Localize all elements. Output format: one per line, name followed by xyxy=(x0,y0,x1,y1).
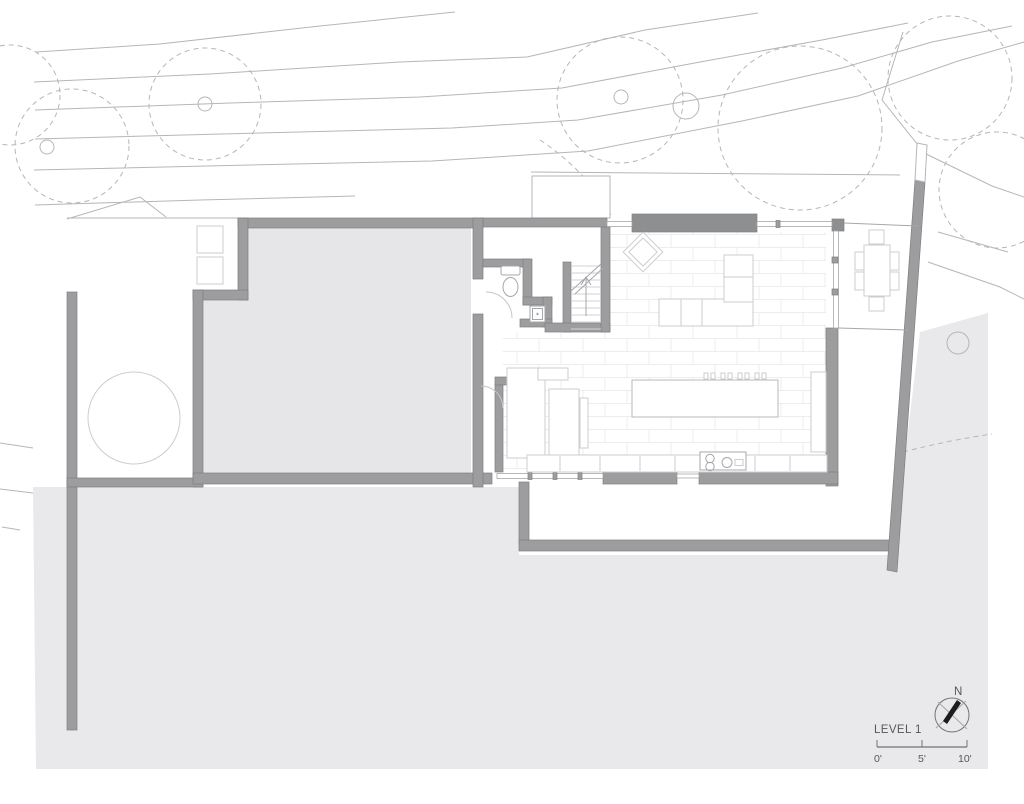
house-west-wall-upper xyxy=(473,218,483,279)
site-retaining-wall-west xyxy=(67,487,77,730)
sofa-seat xyxy=(659,299,753,326)
house-south-wall-b xyxy=(699,472,838,484)
garage-west-wall xyxy=(193,290,203,487)
courtyard-south-wall xyxy=(67,478,203,487)
window-mullion xyxy=(832,289,838,295)
planter xyxy=(197,257,223,284)
stairs xyxy=(571,264,603,329)
dining-chair xyxy=(890,272,899,290)
garage-north-wall xyxy=(238,218,483,228)
patio-west-wall xyxy=(519,482,529,544)
toilet-tank xyxy=(501,266,520,275)
porch-outline xyxy=(532,176,610,218)
tree-canopy-icon xyxy=(557,37,683,163)
refrigerator xyxy=(549,389,579,455)
patio-south-wall xyxy=(519,540,893,551)
courtyard-tree-icon xyxy=(88,372,180,464)
sink-drain-icon xyxy=(536,313,538,315)
scale-tick-0: 0' xyxy=(874,753,882,765)
tree-canopy-icon xyxy=(939,132,1024,248)
dining-table xyxy=(864,245,890,296)
stair-direction-arrow xyxy=(581,277,591,316)
dining-chair xyxy=(869,297,884,311)
south-glass-door xyxy=(677,474,699,478)
kitchen-island xyxy=(632,380,778,417)
kitchen-west-counter xyxy=(507,368,545,458)
kitchen-shelf xyxy=(538,368,568,380)
kitchen-south-counter xyxy=(527,455,827,472)
house-east-wall xyxy=(826,328,838,486)
vestibule-north-wall xyxy=(483,218,607,227)
window-mullion xyxy=(832,257,838,263)
outdoor-dining-set xyxy=(855,230,899,311)
dining-chair xyxy=(855,252,864,270)
north-label: N xyxy=(954,686,963,698)
tree-canopy-icon xyxy=(888,16,1012,140)
tree-canopies xyxy=(0,16,1024,248)
stair-south-wall xyxy=(545,323,610,332)
stair-west-wall xyxy=(563,262,571,332)
dining-chair xyxy=(869,230,884,244)
tree-canopy-icon xyxy=(0,45,60,145)
east-glass-wall xyxy=(834,231,839,328)
window-mullion xyxy=(528,473,532,480)
house-west-wall-lower xyxy=(473,314,483,487)
entry-porch xyxy=(532,176,610,218)
corridor-partition-wall xyxy=(495,385,503,472)
north-window-b xyxy=(757,222,832,227)
courtyard-west-wall xyxy=(67,292,77,487)
planter xyxy=(197,226,223,253)
tree-canopy-icon xyxy=(718,46,882,210)
window-mullion xyxy=(553,473,557,480)
vestibule-east-wall xyxy=(601,227,610,332)
kitchen-east-cabinet xyxy=(811,372,826,452)
tree-trunk-icon xyxy=(673,93,699,119)
window-mullion xyxy=(578,473,582,480)
clerestory-beam xyxy=(632,214,757,232)
slanted-wall-top-segment xyxy=(915,143,927,182)
garage-west-wall-upper xyxy=(238,218,248,300)
dining-chair xyxy=(855,272,864,290)
south-window xyxy=(497,474,603,479)
tree-trunk-icon xyxy=(614,90,628,104)
tree-trunk-icon xyxy=(40,140,54,154)
scale-tick-10: 10' xyxy=(958,753,972,765)
north-window-a xyxy=(607,222,632,227)
deck-north-edge xyxy=(844,223,918,226)
scale-tick-5: 5' xyxy=(918,753,926,765)
floor-plan-canvas: LEVEL 1 0' 5' 10' N xyxy=(0,0,1024,804)
toilet-bowl xyxy=(503,278,518,297)
northeast-corner-post xyxy=(832,219,844,231)
dining-chair xyxy=(890,252,899,270)
floor-plan-page: LEVEL 1 0' 5' 10' N xyxy=(0,0,1024,804)
house-south-wall-a xyxy=(603,472,677,484)
tree-canopy-icon xyxy=(15,89,129,203)
deck-south-edge xyxy=(838,328,908,330)
level-title: LEVEL 1 xyxy=(874,724,922,736)
cooktop-controls xyxy=(735,460,743,466)
kitchen-cabinet-strip xyxy=(580,398,588,448)
sofa-chaise xyxy=(724,255,753,302)
window-mullion xyxy=(776,221,780,228)
garage-south-wall xyxy=(193,473,492,484)
